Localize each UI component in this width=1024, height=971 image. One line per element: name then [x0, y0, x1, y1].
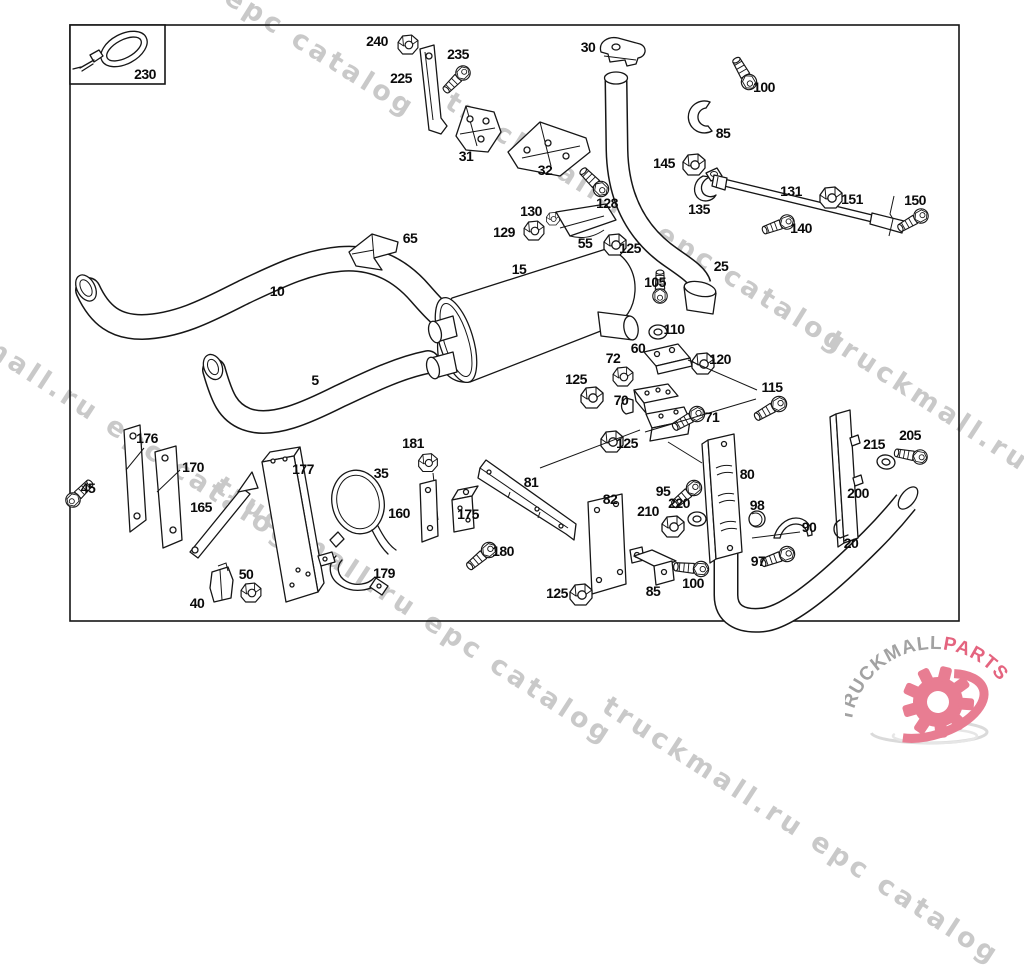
part-bolt-97	[759, 544, 797, 570]
part-bracket-177	[262, 447, 324, 602]
part-nut-151	[820, 187, 842, 208]
part-front-exhaust-pipe-5	[200, 352, 428, 422]
inset-box-cable-tie	[70, 24, 165, 84]
part-clamp-35	[326, 465, 396, 554]
part-bracket-70	[622, 384, 691, 441]
part-bolt-128	[576, 164, 612, 200]
part-nut-240	[398, 35, 418, 54]
part-bolt-180	[463, 539, 500, 573]
part-bracket-80	[702, 434, 742, 563]
part-clamp-179	[318, 552, 388, 595]
part-clamp-40	[210, 563, 233, 602]
part-clamp-30	[600, 38, 645, 66]
part-muffler-15	[424, 249, 640, 387]
part-washer-220	[688, 512, 706, 526]
part-bracket-85	[630, 547, 676, 585]
part-strap-176	[124, 425, 146, 532]
part-nut-125	[581, 387, 603, 408]
part-nut-129	[524, 221, 544, 240]
part-bracket-175	[452, 486, 478, 532]
part-bracket-31	[456, 106, 501, 152]
part-bolt-115	[751, 394, 789, 425]
part-nut-210	[662, 516, 684, 537]
part-front-exhaust-pipe-10	[71, 259, 456, 327]
part-bracket-32	[508, 122, 590, 176]
part-nut-72	[613, 367, 633, 386]
part-bolt-235	[440, 63, 474, 97]
part-washer-110	[649, 325, 667, 339]
part-strap-165	[190, 472, 258, 558]
part-bracket-81	[478, 460, 576, 540]
part-washer-215	[876, 454, 896, 471]
part-bolt-105	[653, 270, 667, 303]
part-bolt-95	[668, 477, 705, 511]
part-bolt-45	[63, 477, 97, 511]
part-bracket-200	[830, 410, 863, 547]
part-bolt-100	[673, 559, 709, 577]
truckmallparts-logo: TRUCKMALLPARTS	[845, 636, 1024, 750]
part-clip-85	[688, 101, 712, 133]
part-end-pipe-20	[715, 483, 922, 620]
part-clip-nut-98	[749, 511, 765, 527]
parts-diagram-page: epc catalogtruckmall.ru epc catalogtruck…	[0, 0, 1024, 750]
part-bolt-205	[893, 445, 928, 465]
part-nut-145	[683, 154, 705, 175]
part-bolt-100	[729, 54, 760, 92]
part-nut-50	[241, 583, 261, 602]
part-plate-160	[420, 480, 438, 542]
part-nut-125	[601, 431, 623, 452]
part-plate-60	[644, 344, 692, 374]
part-nut-125	[570, 584, 592, 605]
part-bolt-140	[760, 213, 796, 238]
part-nut-125	[604, 234, 626, 255]
part-plate-82	[588, 494, 626, 594]
part-bracket-55	[556, 204, 616, 238]
part-strap-170	[155, 446, 182, 548]
part-rod-131	[712, 175, 904, 236]
